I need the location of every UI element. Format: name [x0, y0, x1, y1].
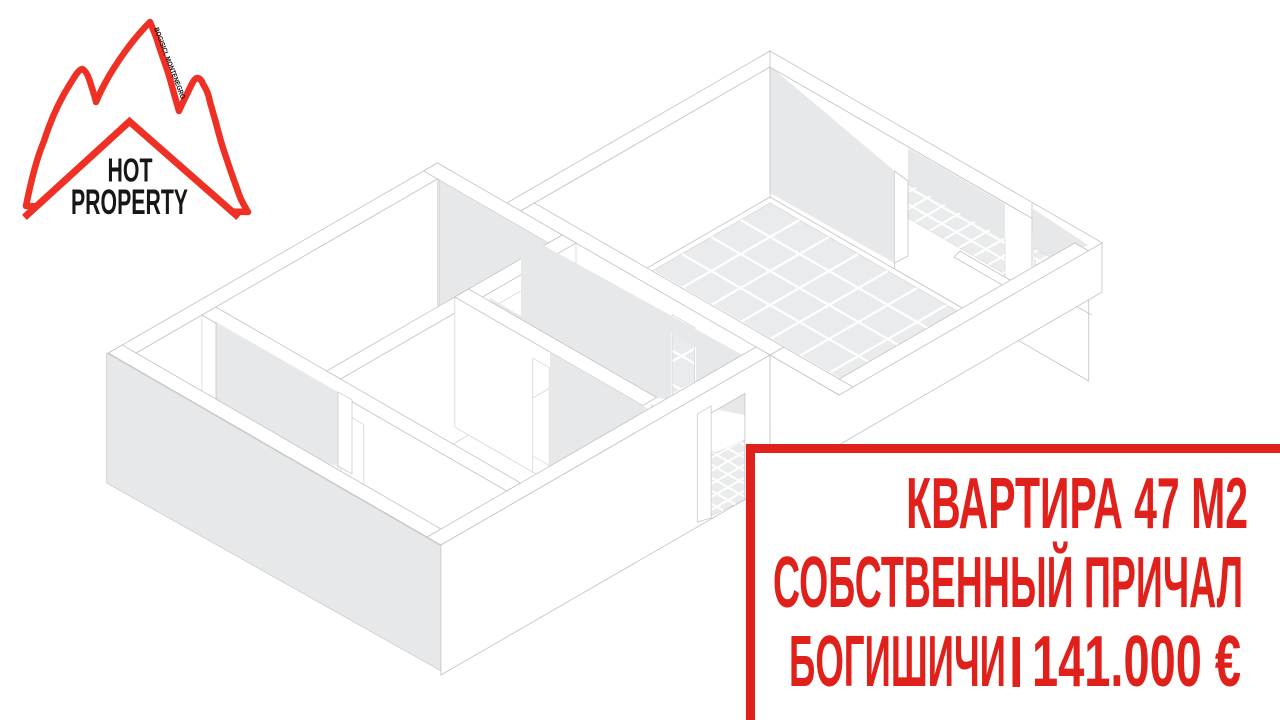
svg-text:БОГИШИЧИ: БОГИШИЧИ: [789, 622, 1006, 703]
svg-text:141.000 €: 141.000 €: [1032, 621, 1241, 702]
svg-text:PROPERTY: PROPERTY: [71, 183, 188, 222]
svg-text:СОБСТВЕННЫЙ ПРИЧАЛ: СОБСТВЕННЫЙ ПРИЧАЛ: [773, 542, 1243, 624]
svg-text:КВАРТИРА 47 М2: КВАРТИРА 47 М2: [906, 464, 1248, 544]
